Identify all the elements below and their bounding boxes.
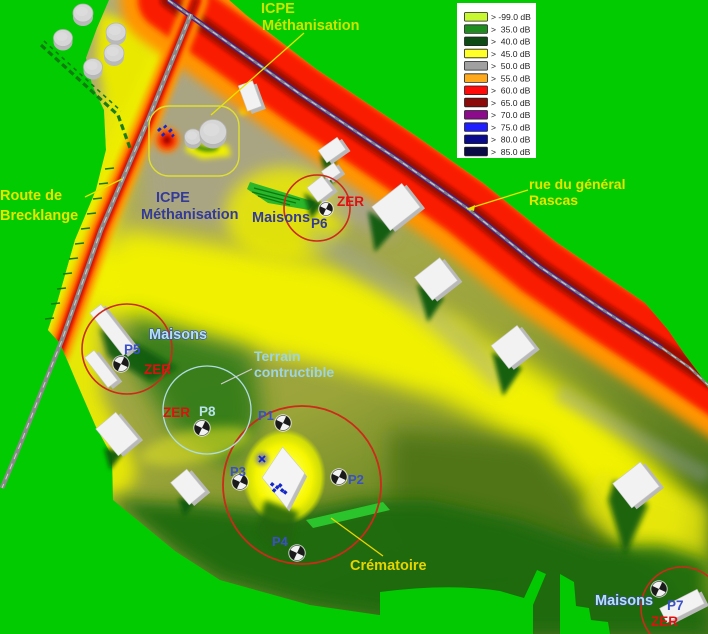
svg-text:> 35.0 dB: > 35.0 dB [491,24,531,34]
svg-text:Maisons: Maisons [149,327,207,343]
svg-text:ICPE: ICPE [156,190,190,206]
svg-text:contructible: contructible [254,364,334,380]
svg-text:P4: P4 [272,534,289,549]
svg-text:ZER: ZER [651,614,678,629]
svg-text:ZER: ZER [163,405,190,420]
svg-text:> -99.0 dB: > -99.0 dB [491,12,531,22]
svg-text:> 85.0 dB: > 85.0 dB [491,147,531,157]
svg-text:Route de: Route de [0,188,62,204]
svg-text:Maisons: Maisons [595,593,653,609]
svg-text:P2: P2 [348,472,364,487]
svg-text:Maisons: Maisons [252,210,310,226]
svg-text:> 70.0 dB: > 70.0 dB [491,110,531,120]
svg-text:Méthanisation: Méthanisation [262,18,359,34]
svg-text:> 45.0 dB: > 45.0 dB [491,49,531,59]
svg-text:Crématoire: Crématoire [350,558,427,574]
svg-text:P1: P1 [258,408,274,423]
svg-text:Terrain: Terrain [254,348,300,364]
svg-text:> 60.0 dB: > 60.0 dB [491,86,531,96]
svg-text:> 80.0 dB: > 80.0 dB [491,135,531,145]
svg-text:P5: P5 [124,342,141,357]
svg-text:ZER: ZER [337,194,364,209]
svg-text:ICPE: ICPE [261,1,295,17]
svg-text:P6: P6 [311,216,328,231]
svg-text:P3: P3 [230,464,246,479]
svg-text:Brecklange: Brecklange [0,208,78,224]
svg-text:P7: P7 [667,598,684,613]
svg-text:P8: P8 [199,404,216,419]
svg-text:> 55.0 dB: > 55.0 dB [491,73,531,83]
svg-text:> 65.0 dB: > 65.0 dB [491,98,531,108]
svg-text:rue du général: rue du général [529,176,625,192]
svg-text:ZER: ZER [144,362,171,377]
svg-text:Méthanisation: Méthanisation [141,207,238,223]
svg-text:Rascas: Rascas [529,192,578,208]
svg-text:> 40.0 dB: > 40.0 dB [491,37,531,47]
svg-text:> 75.0 dB: > 75.0 dB [491,122,531,132]
svg-text:> 50.0 dB: > 50.0 dB [491,61,531,71]
